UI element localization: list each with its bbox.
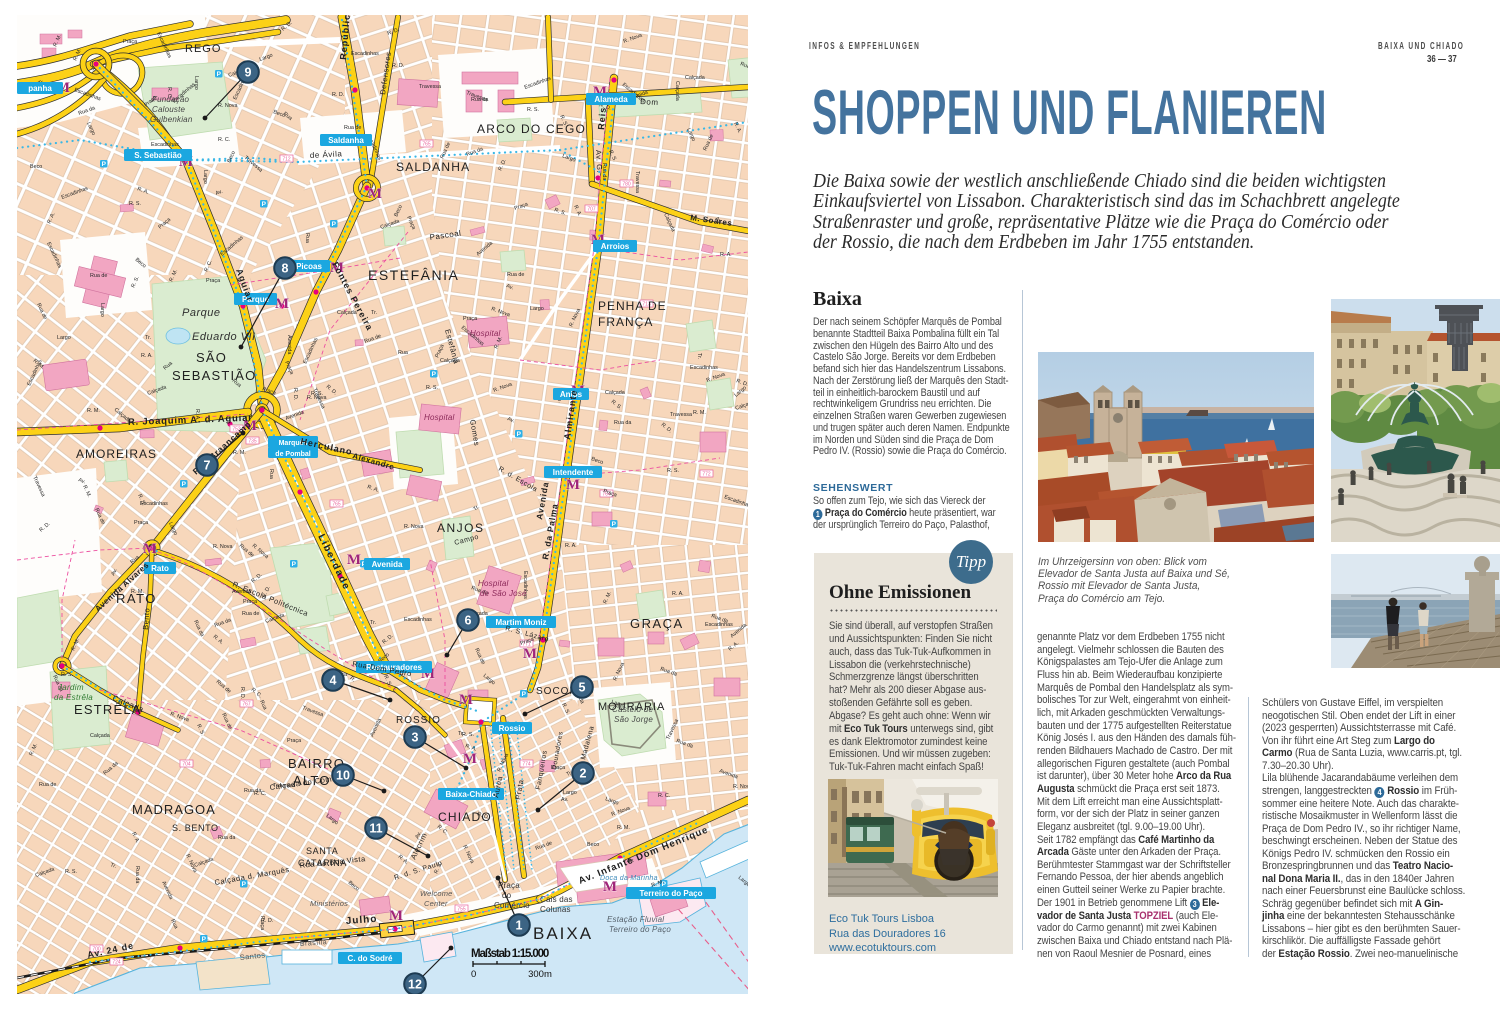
svg-text:R. S.: R. S.: [667, 468, 679, 474]
svg-text:Welcome: Welcome: [420, 889, 453, 898]
svg-text:Saldanha: Saldanha: [328, 136, 364, 145]
svg-text:Picoas: Picoas: [296, 262, 322, 271]
svg-text:R. D.: R. D.: [332, 92, 344, 98]
svg-text:Parque: Parque: [182, 307, 220, 319]
svg-text:Terreiro do Paço: Terreiro do Paço: [640, 889, 703, 898]
svg-text:M: M: [368, 186, 382, 202]
svg-text:BAIXA: BAIXA: [533, 924, 593, 943]
svg-text:REGO: REGO: [185, 43, 221, 55]
svg-text:0: 0: [471, 969, 476, 980]
svg-text:Gulbenkian: Gulbenkian: [150, 115, 193, 124]
svg-text:2: 2: [580, 766, 587, 780]
svg-text:Rua da: Rua da: [218, 835, 235, 841]
svg-text:Largo: Largo: [530, 306, 544, 312]
svg-text:AMOREIRAS: AMOREIRAS: [76, 447, 157, 461]
svg-text:R. Nova: R. Nova: [218, 103, 237, 109]
svg-text:Tr.: Tr.: [458, 731, 464, 737]
svg-text:R. A.: R. A.: [565, 543, 577, 549]
svg-text:11: 11: [369, 821, 382, 835]
svg-text:Colunas: Colunas: [540, 905, 571, 914]
svg-text:M: M: [459, 692, 473, 708]
svg-text:9: 9: [245, 65, 252, 79]
svg-text:P: P: [102, 161, 107, 168]
svg-text:Tr.: Tr.: [370, 620, 376, 626]
svg-text:R. D.: R. D.: [261, 918, 273, 924]
svg-text:R. C.: R. C.: [658, 793, 670, 799]
svg-text:GRAÇA: GRAÇA: [630, 616, 684, 631]
svg-text:da Estrêla: da Estrêla: [54, 693, 93, 702]
svg-text:7: 7: [204, 458, 211, 472]
svg-text:Calçada: Calçada: [337, 310, 357, 316]
svg-text:Arroios: Arroios: [601, 242, 630, 251]
svg-text:Travessa: Travessa: [419, 84, 441, 90]
svg-text:755: 755: [457, 907, 466, 913]
svg-text:1: 1: [516, 918, 523, 932]
svg-text:S. BENTO: S. BENTO: [172, 823, 219, 833]
svg-text:300m: 300m: [528, 969, 552, 980]
svg-text:772: 772: [702, 472, 711, 478]
svg-text:780: 780: [622, 182, 631, 188]
svg-text:Travessa: Travessa: [634, 171, 640, 193]
svg-text:Maßstab 1:15.000: Maßstab 1:15.000: [471, 948, 549, 960]
svg-text:Rua: Rua: [398, 350, 408, 356]
svg-text:SALDANHA: SALDANHA: [396, 160, 470, 174]
svg-text:R. S.: R. S.: [527, 107, 539, 113]
svg-text:SEBASTIÃO: SEBASTIÃO: [172, 368, 257, 383]
svg-text:Praça: Praça: [463, 316, 477, 322]
svg-text:P: P: [292, 561, 297, 568]
svg-text:Avenida: Avenida: [286, 335, 292, 354]
svg-text:Baixa-Chiado: Baixa-Chiado: [445, 790, 496, 799]
svg-text:Reis: Reis: [596, 106, 608, 130]
svg-text:Largo: Largo: [202, 170, 208, 184]
svg-text:Praça: Praça: [123, 39, 137, 45]
svg-text:Cais das: Cais das: [540, 895, 573, 904]
svg-text:R. M.: R. M.: [617, 825, 630, 831]
svg-text:Escadinhas: Escadinhas: [404, 617, 432, 623]
svg-text:CHIADO: CHIADO: [438, 810, 492, 824]
svg-text:Dom: Dom: [640, 97, 659, 107]
svg-text:de São José: de São José: [480, 589, 527, 598]
svg-text:MADRAGOA: MADRAGOA: [132, 802, 216, 817]
svg-text:5: 5: [579, 680, 586, 694]
svg-text:3: 3: [412, 730, 419, 744]
svg-text:Hospital: Hospital: [470, 329, 501, 338]
svg-text:Praça: Praça: [243, 599, 257, 605]
svg-text:R. M.: R. M.: [233, 450, 246, 456]
svg-text:Tr.: Tr.: [371, 310, 377, 316]
svg-text:Rato: Rato: [151, 564, 169, 573]
svg-text:SANTA: SANTA: [306, 846, 338, 856]
svg-text:765: 765: [422, 142, 431, 148]
svg-text:R. D.: R. D.: [392, 63, 404, 69]
svg-text:Jardim: Jardim: [57, 683, 84, 692]
svg-text:Avenida: Avenida: [372, 560, 403, 569]
svg-text:Rua: Rua: [268, 469, 274, 479]
svg-text:São Jorge: São Jorge: [614, 715, 653, 724]
svg-text:R. A.: R. A.: [141, 353, 153, 359]
svg-text:735: 735: [248, 439, 257, 445]
svg-text:Beco: Beco: [30, 164, 42, 170]
svg-text:Bento: Bento: [141, 607, 152, 630]
svg-text:ESTEFÂNIA: ESTEFÂNIA: [368, 267, 459, 283]
svg-text:M: M: [463, 751, 477, 767]
svg-text:Calçada: Calçada: [674, 81, 680, 101]
svg-text:R. S.: R. S.: [426, 385, 438, 391]
svg-text:M: M: [347, 552, 361, 568]
svg-text:R. A.: R. A.: [720, 252, 732, 258]
svg-text:Praça: Praça: [134, 520, 148, 526]
svg-text:Hospital: Hospital: [424, 413, 455, 422]
svg-text:Calouste: Calouste: [152, 105, 186, 114]
svg-text:Tr.: Tr.: [145, 335, 151, 341]
svg-text:Rua de: Rua de: [507, 272, 524, 278]
svg-text:M: M: [523, 646, 537, 662]
svg-text:10: 10: [336, 768, 350, 782]
svg-text:FRANÇA: FRANÇA: [598, 315, 653, 329]
svg-text:Largo: Largo: [57, 335, 71, 341]
svg-text:765: 765: [332, 502, 341, 508]
svg-text:6: 6: [465, 613, 472, 627]
svg-text:Largo: Largo: [99, 303, 105, 317]
svg-text:Estação Fluvial: Estação Fluvial: [607, 915, 664, 924]
svg-text:M: M: [275, 296, 289, 312]
svg-text:P: P: [262, 201, 267, 208]
svg-text:Rua da: Rua da: [244, 788, 261, 794]
svg-text:Center: Center: [424, 899, 448, 908]
svg-text:774: 774: [522, 762, 531, 768]
svg-text:Calçada: Calçada: [90, 733, 110, 739]
svg-text:R. M.: R. M.: [693, 410, 706, 416]
svg-text:SÃO: SÃO: [196, 350, 227, 365]
svg-text:Ministérios: Ministérios: [310, 899, 348, 908]
svg-text:Av.: Av.: [561, 797, 568, 803]
svg-text:Praça: Praça: [287, 738, 301, 744]
svg-text:R. C.: R. C.: [218, 137, 230, 143]
svg-text:P: P: [202, 936, 207, 943]
svg-text:R. S.: R. S.: [65, 869, 77, 875]
svg-text:Rua da: Rua da: [471, 97, 488, 103]
svg-text:Rua de: Rua de: [39, 782, 56, 788]
svg-text:P: P: [522, 691, 527, 698]
svg-text:R. Nova: R. Nova: [213, 544, 232, 550]
svg-text:Rua da: Rua da: [134, 866, 140, 883]
svg-text:R. Nova: R. Nova: [307, 395, 326, 401]
svg-text:ARCO DO CEGO: ARCO DO CEGO: [477, 122, 586, 136]
svg-text:P: P: [332, 221, 337, 228]
svg-text:Terreiro do Paço: Terreiro do Paço: [609, 925, 671, 934]
svg-text:Martim Moniz: Martim Moniz: [495, 618, 546, 627]
svg-text:R. S.: R. S.: [129, 201, 141, 207]
svg-text:Tr.: Tr.: [696, 353, 702, 359]
svg-text:Travessa: Travessa: [670, 412, 692, 418]
svg-text:Rua de: Rua de: [90, 273, 107, 279]
svg-text:Julho: Julho: [345, 914, 377, 927]
svg-text:Av. G.: Av. G.: [594, 150, 604, 174]
svg-text:P: P: [182, 481, 187, 488]
svg-text:724: 724: [112, 960, 121, 966]
svg-text:Praça: Praça: [206, 278, 220, 284]
svg-text:767: 767: [242, 702, 251, 708]
svg-text:P: P: [612, 521, 617, 528]
svg-text:4: 4: [330, 673, 337, 687]
svg-text:panha: panha: [28, 84, 52, 93]
svg-text:Fundação: Fundação: [152, 95, 190, 104]
svg-text:707: 707: [587, 207, 596, 213]
svg-text:Intendente: Intendente: [553, 468, 594, 477]
svg-text:S. Sebastião: S. Sebastião: [134, 151, 182, 160]
svg-text:ROSSIO: ROSSIO: [396, 715, 441, 726]
svg-text:R. Nova: R. Nova: [733, 784, 748, 790]
svg-text:R. D.: R. D.: [239, 687, 245, 699]
svg-text:M: M: [389, 908, 403, 924]
svg-text:P: P: [517, 431, 522, 438]
svg-text:Escadinhas: Escadinhas: [705, 622, 733, 628]
svg-text:RATO: RATO: [116, 591, 157, 606]
svg-text:12: 12: [408, 977, 422, 991]
svg-text:Calçada: Calçada: [605, 390, 625, 396]
svg-text:R. D.: R. D.: [292, 388, 298, 400]
svg-text:Doca da Marinha: Doca da Marinha: [600, 875, 658, 882]
svg-text:8: 8: [282, 261, 289, 275]
svg-text:Rua de: Rua de: [344, 125, 361, 131]
svg-text:C. do Sodré: C. do Sodré: [348, 954, 393, 963]
svg-text:Beco: Beco: [587, 842, 599, 848]
svg-text:P: P: [217, 71, 222, 78]
svg-text:Escadinhas: Escadinhas: [351, 51, 379, 57]
svg-text:Alameda: Alameda: [594, 95, 628, 104]
svg-text:de Ávila: de Ávila: [310, 149, 343, 160]
svg-text:Escadinhas: Escadinhas: [690, 365, 718, 371]
svg-text:Rua da: Rua da: [614, 420, 631, 426]
svg-text:Escadinhas: Escadinhas: [140, 501, 168, 507]
svg-text:R. Nova: R. Nova: [404, 524, 423, 530]
svg-text:Rossio: Rossio: [499, 724, 526, 733]
svg-text:Largo: Largo: [193, 76, 199, 90]
svg-text:Calçada: Calçada: [685, 75, 705, 81]
svg-text:R. M.: R. M.: [87, 408, 100, 414]
svg-text:Hospital: Hospital: [478, 579, 509, 588]
svg-text:R. A.: R. A.: [672, 591, 684, 597]
svg-text:Rua de: Rua de: [242, 611, 259, 617]
svg-text:Largo: Largo: [563, 790, 577, 796]
svg-text:Castelo de: Castelo de: [612, 705, 653, 714]
svg-text:de Pombal: de Pombal: [275, 451, 310, 458]
svg-text:704: 704: [182, 762, 191, 768]
svg-text:Rua: Rua: [304, 233, 310, 243]
svg-text:M: M: [143, 541, 157, 557]
svg-text:712: 712: [282, 157, 291, 163]
svg-text:P: P: [432, 371, 437, 378]
svg-text:PENHA DE: PENHA DE: [598, 299, 667, 313]
svg-text:M: M: [566, 477, 580, 493]
svg-text:R. S.: R. S.: [61, 672, 73, 678]
svg-text:Escadinhas: Escadinhas: [151, 142, 179, 148]
